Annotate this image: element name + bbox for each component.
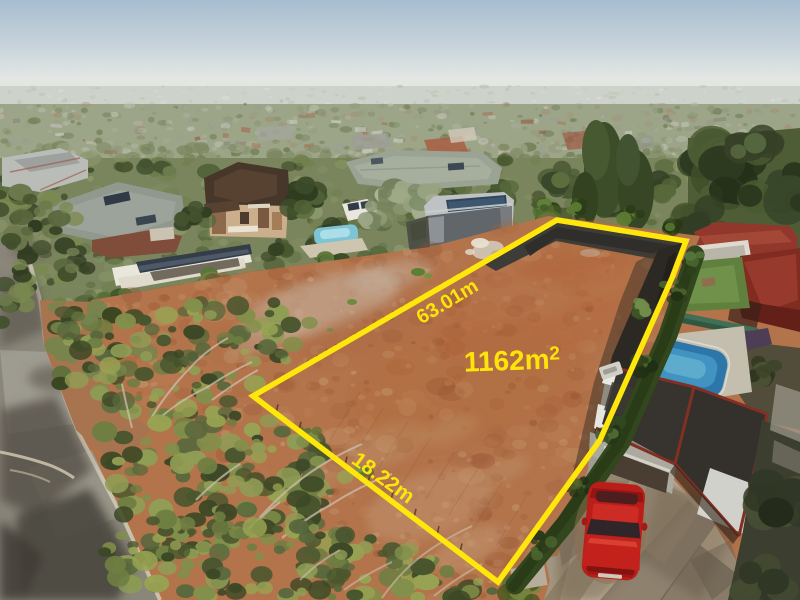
svg-text:1162m2: 1162m2 (463, 343, 560, 377)
